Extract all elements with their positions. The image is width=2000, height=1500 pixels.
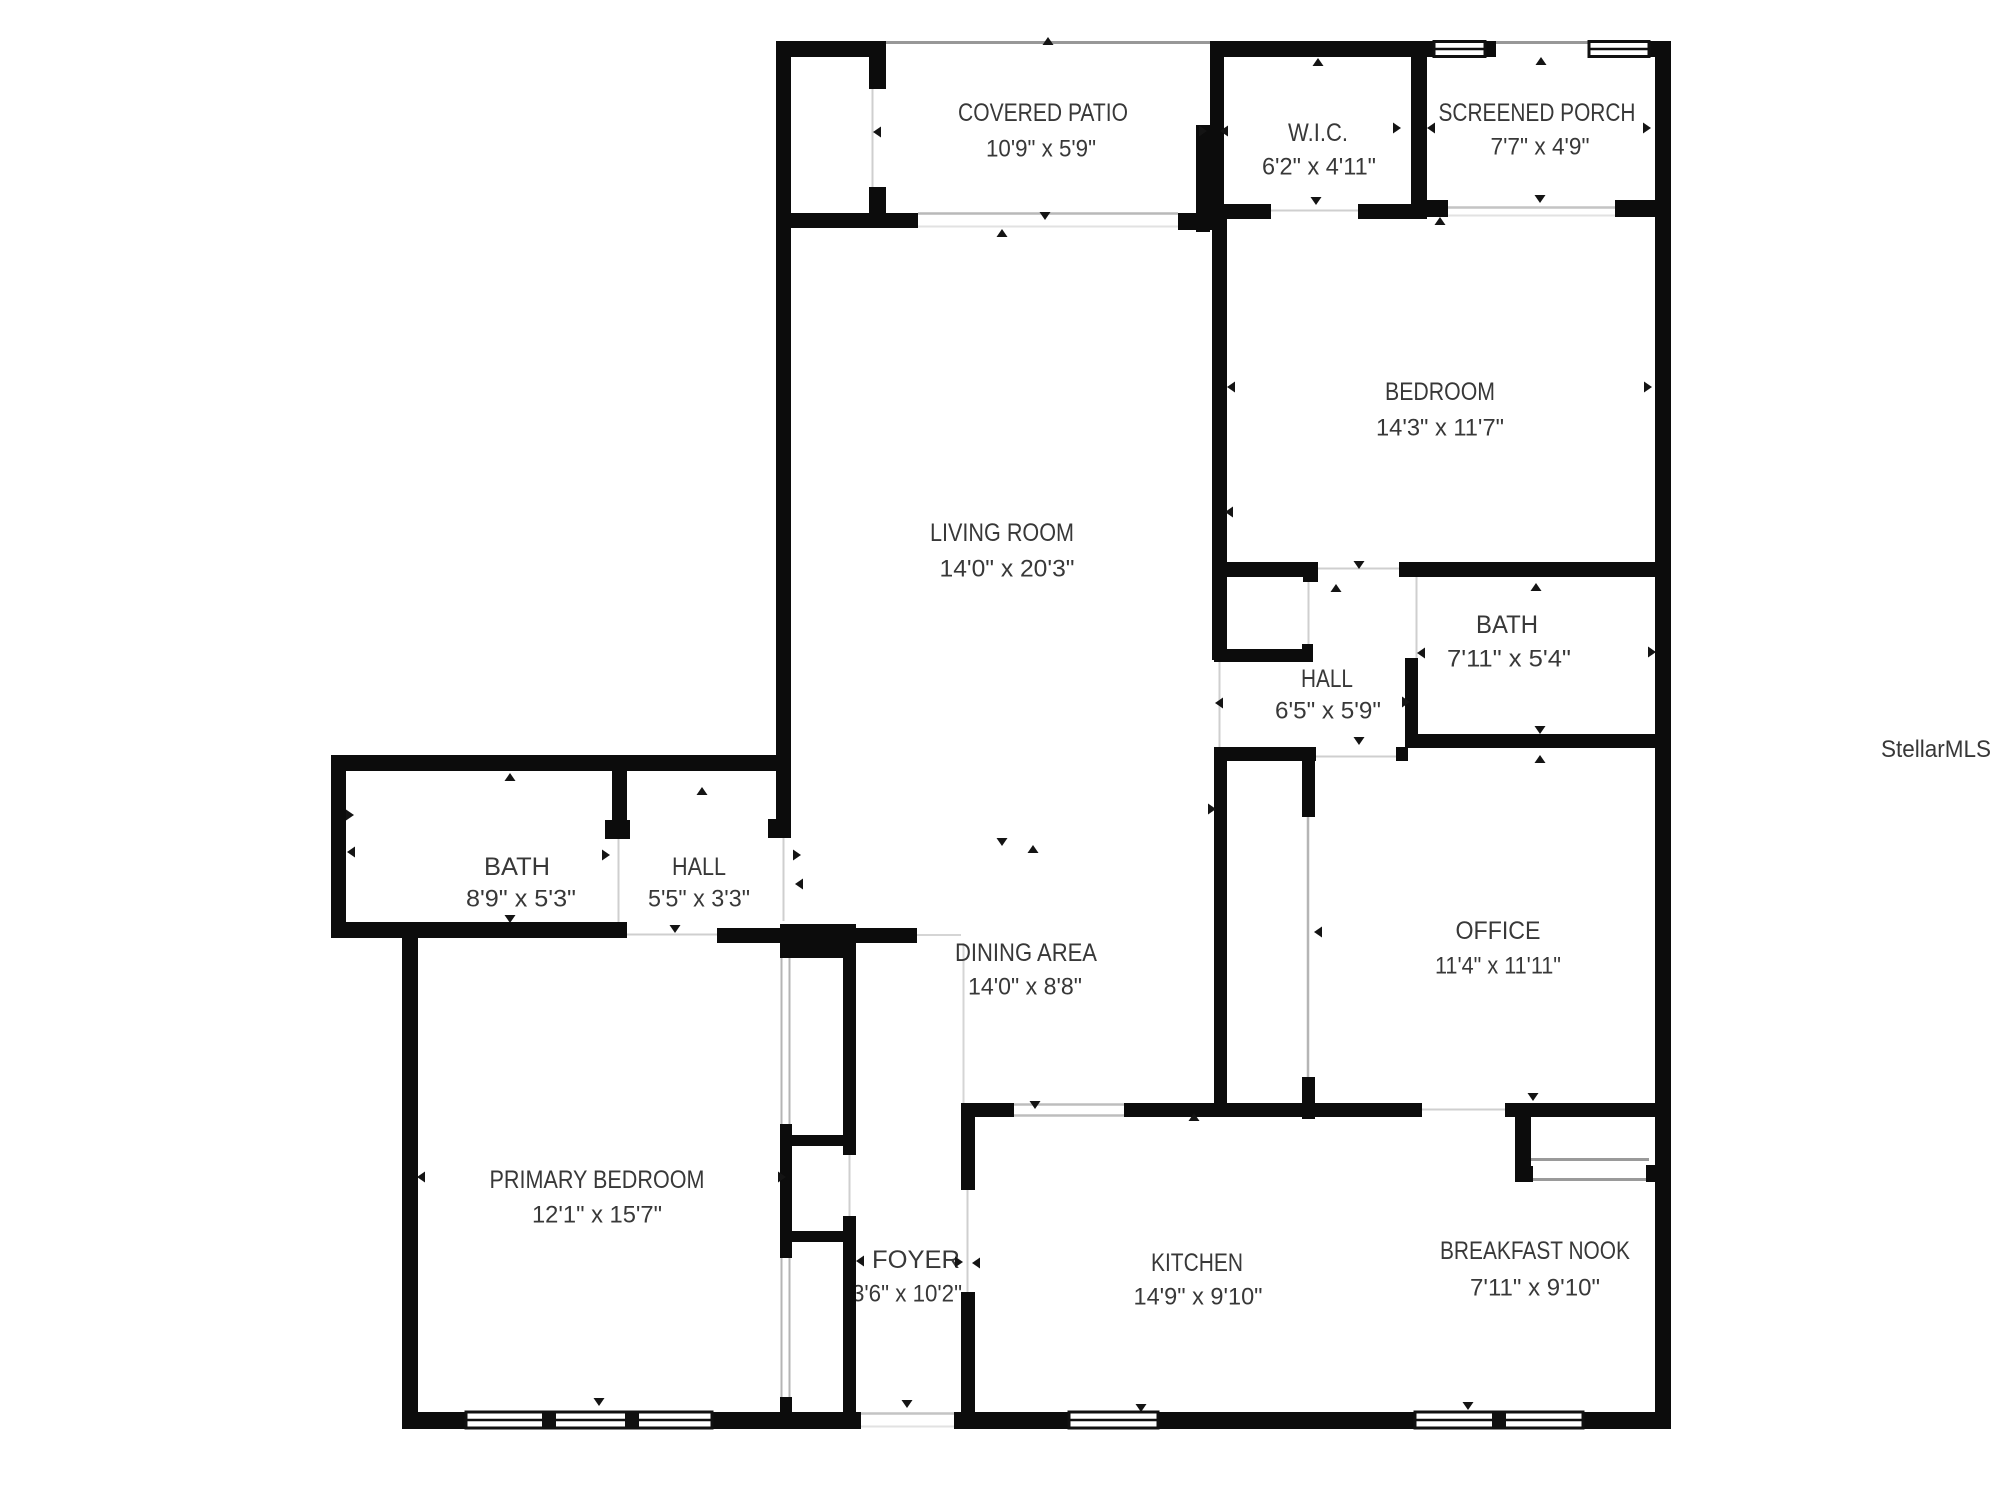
svg-text:BREAKFAST NOOK: BREAKFAST NOOK bbox=[1440, 1237, 1630, 1265]
svg-text:6'2" x 4'11": 6'2" x 4'11" bbox=[1262, 154, 1376, 181]
svg-text:COVERED PATIO: COVERED PATIO bbox=[958, 99, 1128, 127]
svg-text:DINING AREA: DINING AREA bbox=[955, 939, 1097, 967]
svg-text:BATH: BATH bbox=[484, 853, 550, 881]
svg-text:3'6" x 10'2": 3'6" x 10'2" bbox=[852, 1281, 962, 1308]
svg-text:11'4" x 11'11": 11'4" x 11'11" bbox=[1435, 953, 1561, 980]
svg-text:7'11" x 9'10": 7'11" x 9'10" bbox=[1470, 1275, 1600, 1302]
svg-text:6'5" x 5'9": 6'5" x 5'9" bbox=[1275, 698, 1381, 725]
svg-text:7'11" x 5'4": 7'11" x 5'4" bbox=[1447, 646, 1571, 673]
svg-text:OFFICE: OFFICE bbox=[1456, 917, 1541, 945]
svg-text:14'0" x 8'8": 14'0" x 8'8" bbox=[968, 974, 1082, 1001]
svg-text:14'9" x 9'10": 14'9" x 9'10" bbox=[1134, 1284, 1263, 1311]
svg-text:StellarMLS: StellarMLS bbox=[1881, 736, 1991, 763]
svg-text:FOYER: FOYER bbox=[872, 1246, 960, 1274]
svg-text:8'9" x 5'3": 8'9" x 5'3" bbox=[466, 886, 576, 913]
svg-text:PRIMARY BEDROOM: PRIMARY BEDROOM bbox=[490, 1166, 705, 1194]
svg-text:KITCHEN: KITCHEN bbox=[1151, 1249, 1243, 1277]
svg-text:14'3" x 11'7": 14'3" x 11'7" bbox=[1376, 415, 1504, 442]
svg-text:SCREENED PORCH: SCREENED PORCH bbox=[1439, 99, 1636, 127]
svg-text:12'1" x 15'7": 12'1" x 15'7" bbox=[532, 1202, 662, 1229]
svg-text:HALL: HALL bbox=[1301, 665, 1353, 693]
svg-text:7'7" x 4'9": 7'7" x 4'9" bbox=[1491, 134, 1590, 161]
svg-text:5'5" x 3'3": 5'5" x 3'3" bbox=[648, 886, 750, 913]
svg-text:BATH: BATH bbox=[1476, 611, 1538, 639]
svg-text:HALL: HALL bbox=[672, 853, 726, 881]
svg-text:W.I.C.: W.I.C. bbox=[1288, 119, 1348, 147]
svg-text:BEDROOM: BEDROOM bbox=[1385, 378, 1495, 406]
svg-text:14'0" x 20'3": 14'0" x 20'3" bbox=[940, 556, 1075, 583]
svg-text:10'9" x 5'9": 10'9" x 5'9" bbox=[986, 136, 1096, 163]
svg-text:LIVING ROOM: LIVING ROOM bbox=[930, 519, 1074, 547]
